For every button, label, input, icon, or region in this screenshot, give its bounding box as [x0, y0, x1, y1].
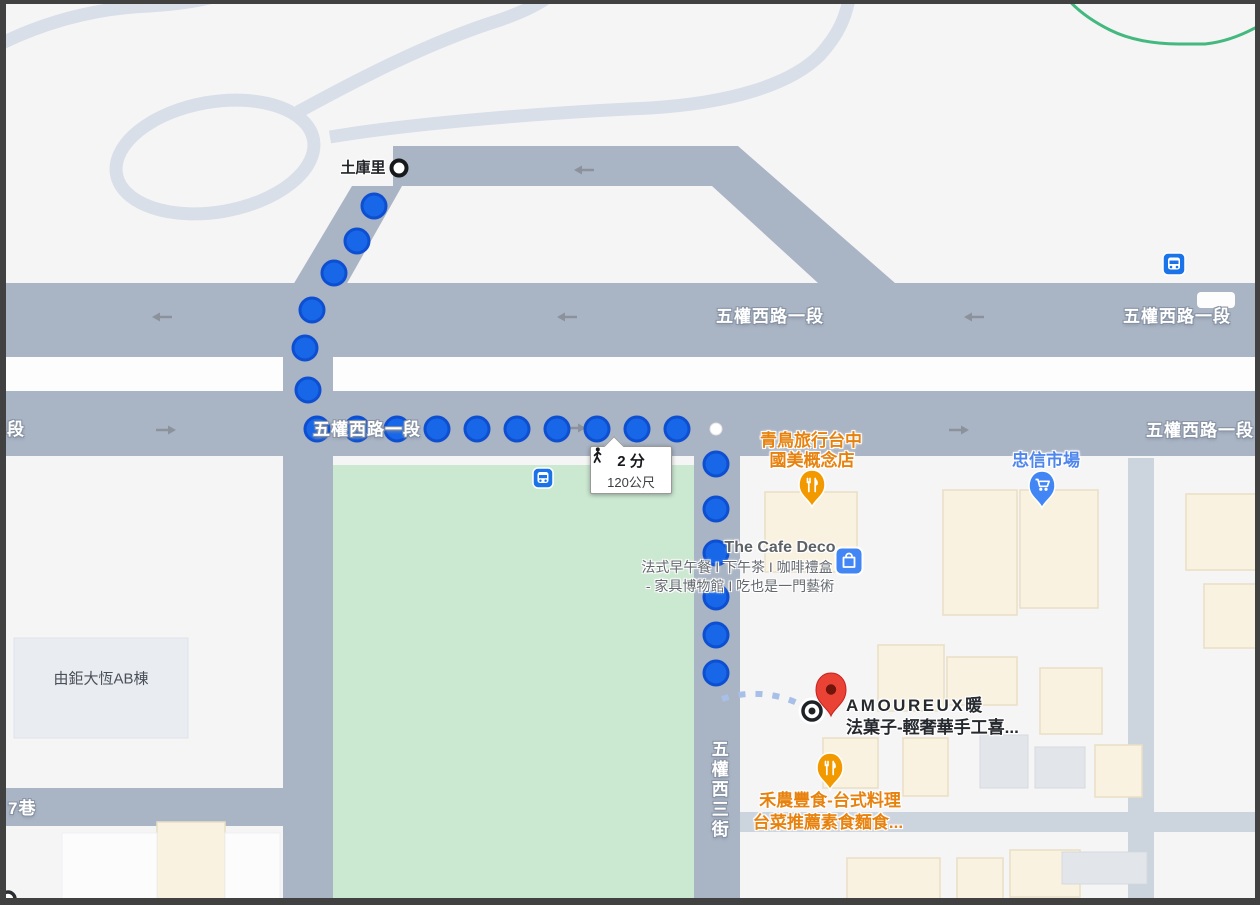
- poi-label-restaurant-1[interactable]: 禾農豐食-台式料理: [759, 791, 901, 811]
- road-label-wuquan-bottom-center: 五權西路一段: [313, 420, 421, 440]
- poi-label-cafe-desc1: 法式早午餐 I 下午茶 I 咖啡禮盒: [641, 559, 832, 575]
- bus-stop-icon-park[interactable]: [533, 468, 553, 488]
- bus-stop-icon-top-right[interactable]: [1163, 253, 1185, 275]
- poi-label-travel-shop-1[interactable]: 青鳥旅行台中: [760, 431, 862, 451]
- destination-label-1[interactable]: AMOUREUX暖: [846, 696, 985, 716]
- poi-label-cafe-desc2: - 家具博物館 I 吃也是一門藝術: [646, 578, 834, 594]
- road-label-wuquan-bottom-left-partial: 段: [7, 420, 25, 440]
- bus-stop-start-label[interactable]: 土庫里: [340, 159, 385, 176]
- route-leg-end-dot: [710, 423, 722, 435]
- walk-duration: 2 分: [617, 450, 645, 471]
- shopping-bag-icon[interactable]: [836, 548, 863, 575]
- road-vertical-left: [283, 456, 333, 898]
- walk-distance: 120公尺: [607, 472, 655, 491]
- road-label-lane7: 7巷: [8, 799, 36, 819]
- route-start-icon: [392, 161, 407, 176]
- poi-label-travel-shop-2[interactable]: 國美概念店: [770, 451, 855, 471]
- poi-label-market[interactable]: 忠信市場: [1012, 451, 1080, 471]
- route-end-icon: [801, 700, 823, 722]
- screenshot-frame: 土庫里 五權西路一段 五權西路一段 段 五權西路一段 五權西路一段 五權西三街 …: [0, 0, 1260, 905]
- walk-time-tooltip: 2 分 120公尺: [590, 446, 672, 494]
- road-label-wuquan-top-right: 五權西路一段: [1123, 307, 1231, 327]
- walking-icon: [591, 447, 604, 464]
- map-viewport[interactable]: 土庫里 五權西路一段 五權西路一段 段 五權西路一段 五權西路一段 五權西三街 …: [6, 4, 1255, 898]
- map-canvas[interactable]: 土庫里 五權西路一段 五權西路一段 段 五權西路一段 五權西路一段 五權西三街 …: [6, 4, 1255, 898]
- poi-label-cafe-name[interactable]: The Cafe Deco: [724, 539, 835, 557]
- road-label-wuquan-bottom-right: 五權西路一段: [1146, 421, 1254, 441]
- poi-label-restaurant-2[interactable]: 台菜推薦素食麵食...: [753, 813, 903, 833]
- road-lane7: [6, 788, 333, 826]
- park-area: [333, 465, 694, 898]
- road-label-wuquan-3rd-street: 五權西三街: [708, 740, 728, 840]
- corner-partial-marker-icon: [6, 892, 15, 898]
- road-label-wuquan-top-center: 五權西路一段: [716, 307, 824, 327]
- building-label-yuju: 由鉅大恆AB棟: [53, 670, 148, 687]
- destination-label-2[interactable]: 法菓子-輕奢華手工喜...: [846, 718, 1019, 738]
